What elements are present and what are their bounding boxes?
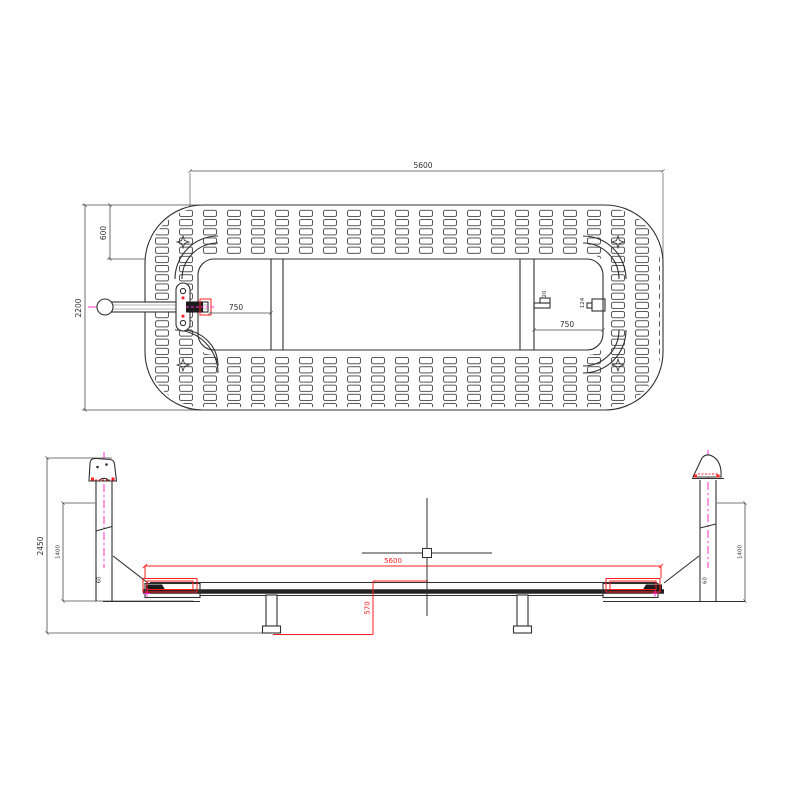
support-leg-left <box>263 595 281 633</box>
dim-label: 750 <box>560 320 575 329</box>
dim-label: 570 <box>364 601 372 614</box>
dim-label: 600 <box>99 226 108 241</box>
dim-end-offset: 600 <box>99 205 110 259</box>
dim-overall-length: 5600 <box>190 161 663 171</box>
tow-eye <box>97 299 113 315</box>
dim-label: 2200 <box>74 298 83 317</box>
dim-overall-height: 2450 <box>36 458 277 633</box>
dim-label: 5600 <box>413 161 432 170</box>
post-gusset <box>664 556 699 583</box>
dim-label: 750 <box>229 303 244 312</box>
dim-label: 2450 <box>36 536 45 555</box>
twistlock-right <box>642 585 662 592</box>
post-break-line <box>700 524 716 528</box>
support-leg-right <box>514 595 532 633</box>
post-left: 60 <box>89 452 148 602</box>
post-right: 60 <box>664 450 724 602</box>
dim-base-right: 60 <box>703 577 709 584</box>
dim-label: 5600 <box>384 557 402 565</box>
twistlock-left <box>146 585 166 592</box>
cad-canvas: 5600 2200 600 750 750 20 124 2450 <box>0 0 800 800</box>
dim-overall-width: 2200 <box>74 205 85 410</box>
cad-drawing: 5600 2200 600 750 750 20 124 2450 <box>0 0 800 800</box>
dim-post-left: 1400 <box>56 503 194 601</box>
dim-base-left: 60 <box>97 576 103 583</box>
crosshair-cursor <box>362 498 492 616</box>
elevation-view: 2450 1400 60 <box>36 450 745 635</box>
plan-view: 5600 2200 600 750 750 20 124 <box>74 161 663 410</box>
dim-label: 1400 <box>56 545 62 559</box>
dim-post-right: 1400 <box>717 503 745 601</box>
deck-opening <box>198 259 603 350</box>
pickbox <box>423 549 432 558</box>
dim-bracket-small: 20 <box>542 290 548 297</box>
dim-label: 1400 <box>738 545 744 559</box>
red-dim-leg-drop: 570 <box>273 581 428 635</box>
dim-bracket-large: 124 <box>580 297 586 308</box>
